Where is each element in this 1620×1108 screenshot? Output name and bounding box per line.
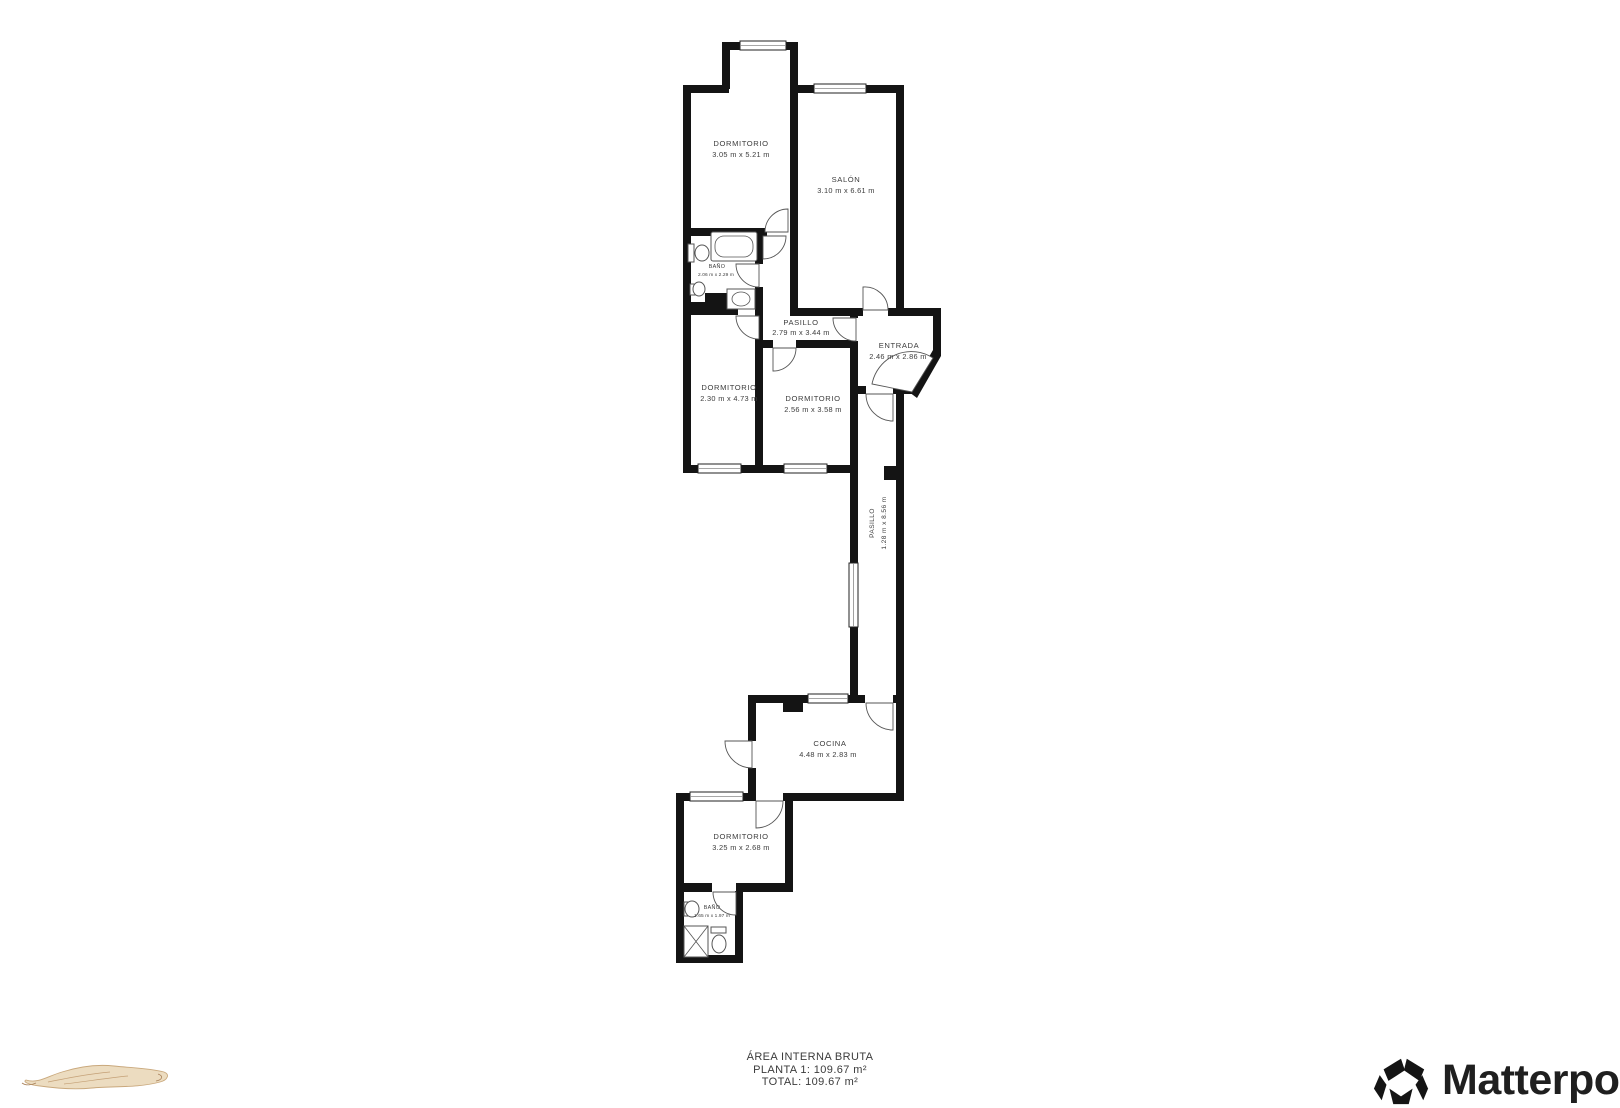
window [808, 694, 848, 703]
door-arc [863, 287, 888, 310]
room-label: BAÑO [704, 904, 720, 911]
room-dims: 3.05 m x 5.21 m [712, 150, 770, 159]
door-arc [763, 236, 786, 259]
floorplan: DORMITORIO 3.05 m x 5.21 m SALÓN 3.10 m … [0, 0, 1620, 1080]
door-arc [736, 264, 759, 287]
room-label: SALÓN [832, 175, 861, 184]
matterport-wordmark: Matterport [1442, 1059, 1620, 1102]
room-label: DORMITORIO [713, 832, 768, 841]
room-dims: 3.10 m x 6.61 m [817, 186, 875, 195]
room-dims: 1.65 m x 1.97 m [694, 913, 730, 919]
room-label: PASILLO [869, 508, 876, 538]
room-label: BAÑO [709, 263, 725, 270]
room-dims: 1.28 m x 8.56 m [881, 496, 888, 549]
room-dims: 2.06 m x 2.29 m [698, 272, 734, 278]
door-arc [713, 892, 736, 915]
shower-icon [684, 926, 708, 957]
matterport-logo: Matterport ® [1372, 1050, 1620, 1108]
room-dims: 4.48 m x 2.83 m [799, 750, 857, 759]
door-arc [725, 741, 752, 768]
room-label: COCINA [813, 739, 846, 748]
decorative-sketch [18, 1042, 203, 1097]
window [784, 464, 827, 473]
door-arc [773, 348, 796, 371]
door-arc [833, 318, 856, 341]
door-arc [736, 316, 759, 339]
window [849, 563, 858, 627]
room-dims: 2.79 m x 3.44 m [772, 328, 830, 337]
room-label: ENTRADA [879, 341, 920, 350]
room-label: PASILLO [783, 318, 818, 327]
door-arc [765, 209, 788, 232]
bathtub-icon [711, 232, 757, 261]
room-dims: 2.56 m x 3.58 m [784, 405, 842, 414]
toilet-icon [688, 244, 709, 262]
toilet-icon [711, 927, 726, 953]
matterport-cube-icon [1372, 1050, 1430, 1108]
room-dims: 2.30 m x 4.73 m [700, 394, 758, 403]
room-label: DORMITORIO [701, 383, 756, 392]
walls-path [676, 42, 941, 963]
window [690, 792, 743, 801]
window [698, 464, 741, 473]
room-label: DORMITORIO [713, 139, 768, 148]
bidet-icon [690, 282, 705, 296]
sink-icon [727, 289, 755, 309]
door-arc [866, 703, 893, 730]
room-dims: 3.25 m x 2.68 m [712, 843, 770, 852]
room-dims: 2.46 m x 2.86 m [869, 352, 927, 361]
window [740, 41, 786, 50]
door-arc [756, 801, 783, 828]
room-label: DORMITORIO [785, 394, 840, 403]
door-arc [866, 394, 893, 421]
window [814, 84, 866, 93]
